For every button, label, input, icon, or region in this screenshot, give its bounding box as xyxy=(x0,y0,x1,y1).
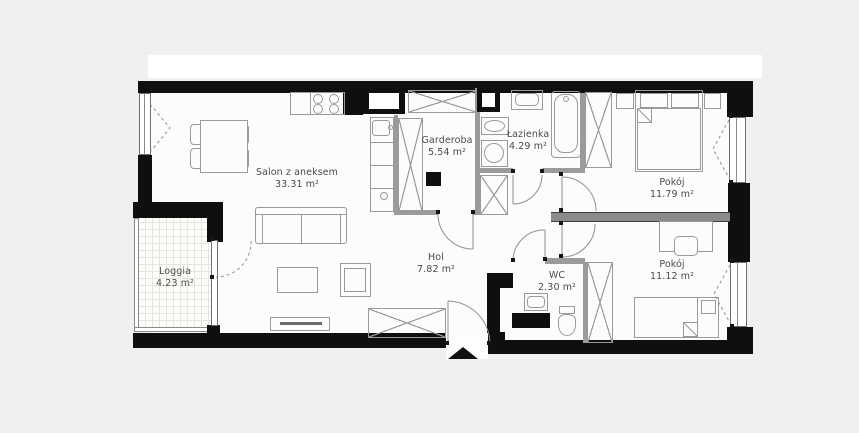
room-area: 7.82 m² xyxy=(417,264,455,276)
wall-right-top xyxy=(727,81,753,117)
kitchen-wall-block xyxy=(343,88,363,115)
wardrobe-bedroom1 xyxy=(585,92,612,168)
hinge-marker xyxy=(543,257,547,261)
toilet-tank xyxy=(559,306,575,314)
armchair-seat xyxy=(344,268,366,292)
pillow xyxy=(701,300,716,314)
hinge-marker xyxy=(210,237,214,241)
hinge-marker xyxy=(445,341,449,345)
window-salon-left xyxy=(139,93,151,155)
sofa-seat-divider xyxy=(301,214,302,243)
kitchen-faucet xyxy=(388,125,393,130)
toilet-bowl xyxy=(558,314,576,336)
hinge-marker xyxy=(540,169,544,173)
hinge-marker xyxy=(559,254,563,258)
room-label-pokoj2: Pokój 11.12 m² xyxy=(650,259,694,282)
shaft-wc-mid xyxy=(512,313,550,328)
stove-burner xyxy=(329,94,339,104)
hinge-marker xyxy=(210,275,214,279)
room-label-loggia: Loggia 4.23 m² xyxy=(156,266,194,289)
loggia-railing-left xyxy=(134,218,139,329)
room-label-garderoba: Garderoba 5.54 m² xyxy=(421,135,472,158)
room-name: Pokój xyxy=(650,259,694,271)
nightstand xyxy=(704,93,721,109)
hinge-marker xyxy=(559,221,563,225)
stove-burner xyxy=(329,104,339,114)
dining-table xyxy=(200,120,248,173)
room-name: Salon z aneksem xyxy=(256,167,338,179)
room-area: 4.23 m² xyxy=(156,278,194,290)
tv xyxy=(280,322,322,325)
bathroom-sink-basin xyxy=(484,120,505,132)
nightstand xyxy=(616,93,634,109)
room-label-lazienka: Łazienka 4.29 m² xyxy=(507,129,550,152)
room-label-wc: WC 2.30 m² xyxy=(538,270,576,293)
stove-burner xyxy=(313,104,323,114)
bathtub-faucet xyxy=(563,96,569,102)
entrance-arrow-icon xyxy=(448,347,478,359)
balcony-door-window xyxy=(211,240,218,326)
sofa-arm-line xyxy=(262,214,263,243)
wall-right-middle xyxy=(728,183,750,262)
pillow xyxy=(640,93,668,108)
entrance-jamb xyxy=(487,332,505,348)
wall-bathroom-bottom-left xyxy=(480,168,513,173)
room-name: Łazienka xyxy=(507,129,550,141)
room-name: Hol xyxy=(417,252,455,264)
kitchen-counter-divider xyxy=(310,93,311,114)
window-salon-left-frame xyxy=(144,94,145,154)
counter-divider xyxy=(371,188,393,189)
wardrobe-bedroom2 xyxy=(587,262,613,343)
wall-wc-top xyxy=(545,258,585,264)
counter-divider xyxy=(371,142,393,143)
hinge-marker xyxy=(436,210,440,214)
window-bedroom2-frame xyxy=(737,263,738,326)
room-area: 4.29 m² xyxy=(507,141,550,153)
hinge-marker xyxy=(471,210,475,214)
wall-loggia-corner-right xyxy=(207,202,223,242)
wc-sink-basin xyxy=(527,296,545,308)
wardrobe-garderoba-top xyxy=(408,90,477,113)
counter-symbol xyxy=(380,192,388,200)
room-name: Pokój xyxy=(650,177,694,189)
wardrobe-garderoba-left xyxy=(398,118,423,212)
shaft-bathroom-void xyxy=(482,93,495,107)
hinge-marker xyxy=(729,114,733,118)
loggia-railing-bottom xyxy=(134,327,211,332)
room-name: Loggia xyxy=(156,266,194,278)
room-area: 33.31 m² xyxy=(256,179,338,191)
bathroom-cabinet-inner xyxy=(515,93,539,106)
window-bedroom1-frame xyxy=(736,118,737,182)
shaft-garderoba xyxy=(426,172,441,186)
wall-bathroom-bottom-right xyxy=(542,168,585,173)
room-name: Garderoba xyxy=(421,135,472,147)
hinge-marker xyxy=(487,341,491,345)
hinge-marker xyxy=(559,172,563,176)
pillow xyxy=(671,93,699,108)
window-bedroom2 xyxy=(730,262,747,327)
room-area: 5.54 m² xyxy=(421,147,472,159)
room-area: 11.12 m² xyxy=(650,271,694,283)
blanket-fold xyxy=(683,322,698,337)
hinge-marker xyxy=(511,258,515,262)
sofa-arm-line xyxy=(340,214,341,243)
hinge-marker xyxy=(730,259,734,263)
room-label-salon: Salon z aneksem 33.31 m² xyxy=(256,167,338,190)
window-bedroom1 xyxy=(729,117,746,183)
coffee-table xyxy=(277,267,318,293)
room-name: WC xyxy=(538,270,576,282)
hinge-marker xyxy=(730,324,734,328)
hinge-marker xyxy=(559,208,563,212)
counter-divider xyxy=(371,165,393,166)
hinge-marker xyxy=(511,169,515,173)
room-label-hol: Hol 7.82 m² xyxy=(417,252,455,275)
blanket-fold xyxy=(637,108,652,123)
hinge-marker xyxy=(729,180,733,184)
floor-plan: Salon z aneksem 33.31 m² Garderoba 5.54 … xyxy=(0,0,859,433)
wall-right-bottom xyxy=(727,327,753,354)
stove-burner xyxy=(313,94,323,104)
corridor-closet xyxy=(480,175,508,215)
bathtub-inner xyxy=(554,94,578,153)
washing-machine-drum xyxy=(484,143,504,163)
white-strip xyxy=(148,55,762,78)
room-area: 11.79 m² xyxy=(650,189,694,201)
desk-chair xyxy=(674,236,698,256)
room-label-pokoj1: Pokój 11.79 m² xyxy=(650,177,694,200)
shaft-kitchen-void xyxy=(369,93,399,109)
hallway-closet xyxy=(368,308,446,338)
wall-bottom-right xyxy=(487,340,753,354)
room-area: 2.30 m² xyxy=(538,282,576,294)
